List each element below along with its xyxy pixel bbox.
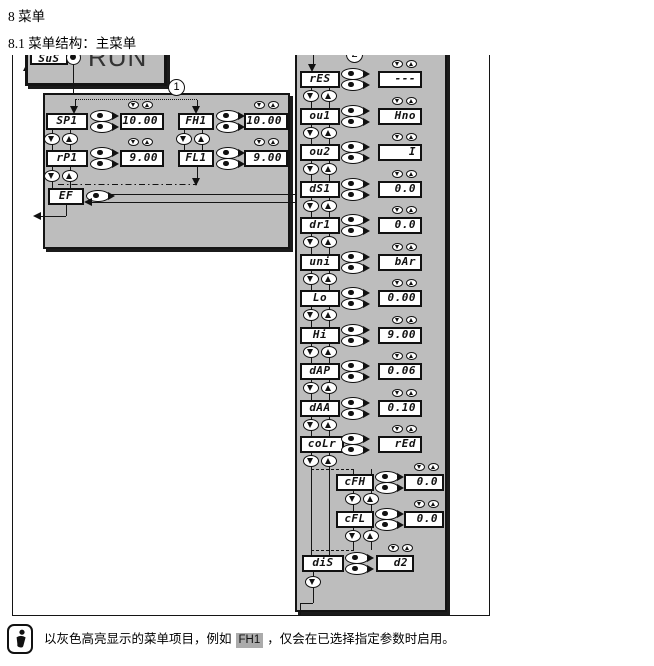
menu-label-box: SP1: [46, 113, 88, 130]
menu-value-box: 10.00: [120, 113, 164, 130]
set-button-icon: [341, 444, 365, 456]
set-button-dot: [97, 150, 103, 156]
up-arrow-glyph: [325, 385, 331, 391]
up-glyph: [405, 546, 409, 550]
section-heading: 8 菜单: [8, 5, 45, 25]
set-button-arrow: [363, 107, 370, 115]
up-button-icon: [62, 170, 78, 182]
menu-label-box: ou2: [300, 144, 340, 161]
up-button-icon: [321, 273, 337, 285]
set-button-dot: [348, 82, 354, 88]
set-button-arrow: [397, 484, 404, 492]
set-button-dot: [348, 447, 354, 453]
down-glyph: [395, 208, 399, 212]
set-button-dot: [97, 124, 103, 130]
down-button-icon: [303, 90, 319, 102]
up-arrow-glyph: [325, 349, 331, 355]
ef-label-box: EF: [48, 188, 84, 205]
set-button-dot: [348, 301, 354, 307]
set-button-dot: [348, 338, 354, 344]
menu-structure-diagram: SuSRUN1SP110.00FH110.00rP19.00FL19.00EF2…: [0, 55, 654, 618]
set-button-icon: [216, 158, 240, 170]
view-down-icon: [254, 101, 265, 109]
up-glyph: [145, 140, 149, 144]
set-button-arrow: [363, 253, 370, 261]
connector-line: [313, 55, 314, 64]
down-arrow-glyph: [180, 136, 186, 142]
set-button-icon: [341, 262, 365, 274]
set-button-dot: [348, 363, 354, 369]
view-up-icon: [406, 97, 417, 105]
set-button-arrow: [112, 112, 119, 120]
down-arrow-glyph: [307, 276, 313, 282]
sus-label-box: SuS: [30, 55, 68, 65]
set-button-dot: [223, 150, 229, 156]
menu-label-box: cFH: [336, 474, 374, 491]
set-button-arrow: [397, 521, 404, 529]
set-button-arrow: [367, 565, 374, 573]
up-arrow-glyph: [325, 130, 331, 136]
view-up-icon: [406, 243, 417, 251]
down-arrow-glyph: [48, 173, 54, 179]
set-button-dot: [97, 113, 103, 119]
up-arrow-glyph: [325, 422, 331, 428]
set-button-icon: [341, 298, 365, 310]
connector-line: [58, 184, 197, 185]
menu-label-box: Lo: [300, 290, 340, 307]
set-button-arrow: [363, 435, 370, 443]
connector-line: [12, 615, 489, 616]
set-button-icon: [341, 371, 365, 383]
set-button-dot: [70, 55, 76, 60]
up-arrow-glyph: [325, 203, 331, 209]
up-button-icon: [321, 90, 337, 102]
set-button-dot: [348, 265, 354, 271]
up-button-icon: [363, 493, 379, 505]
up-button-icon: [363, 530, 379, 542]
view-down-icon: [392, 133, 403, 141]
set-button-icon: [375, 519, 399, 531]
down-button-icon: [303, 200, 319, 212]
set-button-dot: [223, 124, 229, 130]
up-arrow-glyph: [198, 136, 204, 142]
down-glyph: [417, 465, 421, 469]
set-button-dot: [93, 193, 99, 199]
menu-label-box: FH1: [178, 113, 214, 130]
up-arrow-glyph: [325, 166, 331, 172]
set-button-arrow: [363, 337, 370, 345]
down-button-icon: [176, 133, 192, 145]
set-button-dot: [382, 485, 388, 491]
up-glyph: [145, 103, 149, 107]
down-button-icon: [303, 309, 319, 321]
set-button-dot: [348, 108, 354, 114]
view-up-icon: [268, 138, 279, 146]
down-arrow-glyph: [307, 166, 313, 172]
menu-value-box: 9.00: [120, 150, 164, 167]
up-glyph: [431, 502, 435, 506]
set-button-arrow: [363, 399, 370, 407]
up-arrow-glyph: [325, 312, 331, 318]
view-down-icon: [392, 243, 403, 251]
set-button-dot: [348, 144, 354, 150]
up-glyph: [409, 245, 413, 249]
up-glyph: [409, 391, 413, 395]
connector-line: [66, 205, 67, 216]
set-button-arrow: [363, 446, 370, 454]
set-button-arrow: [397, 473, 404, 481]
set-button-icon: [90, 158, 114, 170]
set-button-dot: [382, 522, 388, 528]
down-glyph: [395, 391, 399, 395]
down-glyph: [131, 140, 135, 144]
menu-label-box: rES: [300, 71, 340, 88]
set-button-arrow: [363, 300, 370, 308]
set-button-arrow: [363, 180, 370, 188]
down-glyph: [391, 546, 395, 550]
down-button-icon: [303, 127, 319, 139]
menu-label-box: dAP: [300, 363, 340, 380]
set-button-dot: [223, 161, 229, 167]
set-button-arrow: [112, 149, 119, 157]
set-button-dot: [348, 436, 354, 442]
set-button-arrow: [363, 326, 370, 334]
up-arrow-glyph: [66, 173, 72, 179]
menu-label-box: FL1: [178, 150, 214, 167]
up-button-icon: [321, 346, 337, 358]
down-glyph: [395, 281, 399, 285]
info-person-glyph: [13, 629, 28, 649]
up-button-icon: [321, 455, 337, 467]
set-button-dot: [348, 181, 354, 187]
set-button-dot: [348, 192, 354, 198]
down-arrow-glyph: [307, 312, 313, 318]
menu-value-box: 9.00: [244, 150, 288, 167]
menu-value-box: Hno: [378, 108, 422, 125]
set-button-icon: [345, 563, 369, 575]
set-button-icon: [341, 79, 365, 91]
down-arrow-glyph: [307, 422, 313, 428]
subsection-heading: 8.1 菜单结构：主菜单: [8, 32, 136, 52]
up-button-icon: [321, 309, 337, 321]
note-text-after: ，仅会在已选择指定参数时启用。: [267, 632, 455, 646]
set-button-arrow: [363, 154, 370, 162]
down-button-icon: [303, 346, 319, 358]
up-arrow-glyph: [367, 533, 373, 539]
set-button-dot: [382, 511, 388, 517]
set-button-arrow: [363, 362, 370, 370]
down-button-icon: [303, 382, 319, 394]
set-button-arrow: [363, 227, 370, 235]
down-arrow-glyph: [307, 130, 313, 136]
connector-line: [40, 216, 66, 217]
set-button-icon: [341, 335, 365, 347]
up-arrow-glyph: [66, 136, 72, 142]
down-button-icon: [345, 493, 361, 505]
up-glyph: [431, 465, 435, 469]
menu-value-box: bAr: [378, 254, 422, 271]
set-button-dot: [348, 400, 354, 406]
up-arrow-glyph: [367, 496, 373, 502]
connector-line: [110, 194, 295, 195]
up-arrow-glyph: [325, 276, 331, 282]
up-button-icon: [321, 200, 337, 212]
view-up-icon: [406, 133, 417, 141]
set-button-dot: [348, 71, 354, 77]
set-button-arrow: [112, 123, 119, 131]
connector-line: [300, 603, 313, 604]
run-display-text: RUN: [88, 55, 166, 82]
down-arrow-glyph: [307, 349, 313, 355]
down-glyph: [257, 103, 261, 107]
up-button-icon: [321, 163, 337, 175]
set-button-dot: [348, 411, 354, 417]
set-button-arrow: [108, 192, 115, 200]
view-down-icon: [392, 425, 403, 433]
set-button-dot: [348, 119, 354, 125]
connector-line: [300, 603, 301, 616]
info-note: 以灰色高亮显示的菜单项目，例如FH1，仅会在已选择指定参数时启用。: [7, 624, 647, 654]
view-up-icon: [406, 170, 417, 178]
down-glyph: [395, 245, 399, 249]
view-up-icon: [142, 101, 153, 109]
up-arrow-glyph: [325, 93, 331, 99]
down-arrow-glyph: [307, 203, 313, 209]
down-arrow-glyph: [349, 533, 355, 539]
set-button-arrow: [363, 373, 370, 381]
view-down-icon: [392, 170, 403, 178]
set-button-icon: [341, 152, 365, 164]
up-glyph: [409, 135, 413, 139]
set-button-dot: [352, 555, 358, 561]
menu-label-box: ou1: [300, 108, 340, 125]
down-button-icon: [305, 576, 321, 588]
view-up-icon: [268, 101, 279, 109]
note-text-before: 以灰色高亮显示的菜单项目，例如: [44, 632, 232, 646]
view-down-icon: [414, 500, 425, 508]
set-button-dot: [348, 254, 354, 260]
down-arrow-glyph: [307, 385, 313, 391]
down-arrow-glyph: [309, 579, 315, 585]
view-down-icon: [128, 101, 139, 109]
down-button-icon: [303, 419, 319, 431]
menu-value-box: 0.0: [404, 474, 444, 491]
view-down-icon: [392, 206, 403, 214]
info-icon: [7, 624, 33, 654]
view-up-icon: [406, 352, 417, 360]
set-button-arrow: [363, 216, 370, 224]
view-up-icon: [406, 389, 417, 397]
menu-value-box: 0.0: [404, 511, 444, 528]
view-down-icon: [414, 463, 425, 471]
down-glyph: [395, 318, 399, 322]
set-button-dot: [348, 290, 354, 296]
up-glyph: [409, 99, 413, 103]
view-down-icon: [392, 279, 403, 287]
up-glyph: [409, 281, 413, 285]
view-down-icon: [128, 138, 139, 146]
up-button-icon: [321, 382, 337, 394]
view-up-icon: [406, 206, 417, 214]
menu-label-box: dAA: [300, 400, 340, 417]
view-down-icon: [392, 60, 403, 68]
down-button-icon: [303, 455, 319, 467]
up-button-icon: [321, 236, 337, 248]
down-button-icon: [44, 170, 60, 182]
set-button-dot: [348, 374, 354, 380]
view-up-icon: [406, 425, 417, 433]
set-button-arrow: [363, 410, 370, 418]
down-arrow-glyph: [48, 136, 54, 142]
view-up-icon: [428, 463, 439, 471]
set-button-dot: [348, 217, 354, 223]
menu-value-box: 0.06: [378, 363, 422, 380]
menu-label-box: Hi: [300, 327, 340, 344]
connector-line: [12, 55, 13, 616]
view-down-icon: [388, 544, 399, 552]
menu-value-box: 10.00: [244, 113, 288, 130]
down-button-icon: [303, 163, 319, 175]
set-button-dot: [348, 228, 354, 234]
view-down-icon: [392, 352, 403, 360]
down-glyph: [395, 135, 399, 139]
menu-label-box: dr1: [300, 217, 340, 234]
view-down-icon: [392, 389, 403, 397]
set-button-dot: [348, 327, 354, 333]
menu-value-box: 0.10: [378, 400, 422, 417]
set-button-arrow: [112, 160, 119, 168]
down-glyph: [395, 354, 399, 358]
set-button-dot: [223, 113, 229, 119]
set-button-arrow: [363, 118, 370, 126]
set-button-dot: [382, 474, 388, 480]
set-button-arrow: [363, 264, 370, 272]
connector-line: [313, 588, 314, 603]
menu-value-box: 0.0: [378, 181, 422, 198]
menu-label-box: cFL: [336, 511, 374, 528]
menu-label-box: coLr: [300, 436, 344, 453]
set-button-icon: [341, 408, 365, 420]
set-button-arrow: [363, 289, 370, 297]
down-glyph: [131, 103, 135, 107]
down-button-icon: [345, 530, 361, 542]
set-button-arrow: [363, 81, 370, 89]
set-button-dot: [97, 161, 103, 167]
connector-line: [311, 469, 354, 470]
up-glyph: [271, 103, 275, 107]
highlighted-menu-item: FH1: [236, 633, 264, 648]
menu-value-box: rEd: [378, 436, 422, 453]
view-down-icon: [254, 138, 265, 146]
view-up-icon: [428, 500, 439, 508]
down-arrow-glyph: [307, 239, 313, 245]
up-glyph: [409, 354, 413, 358]
set-button-icon: [375, 482, 399, 494]
connector-line: [489, 55, 490, 616]
left-arrowhead-icon: [84, 198, 92, 206]
set-button-icon: [216, 121, 240, 133]
menu-label-box: uni: [300, 254, 340, 271]
up-glyph: [409, 62, 413, 66]
menu-value-box: 9.00: [378, 327, 422, 344]
connector-line: [197, 167, 198, 178]
up-button-icon: [194, 133, 210, 145]
down-arrow-glyph: [307, 93, 313, 99]
down-glyph: [395, 62, 399, 66]
up-arrow-glyph: [325, 458, 331, 464]
up-arrow-glyph: [325, 239, 331, 245]
callout-1: 1: [168, 79, 185, 96]
up-button-icon: [321, 419, 337, 431]
set-button-dot: [352, 566, 358, 572]
down-glyph: [257, 140, 261, 144]
menu-label-box: dS1: [300, 181, 340, 198]
menu-value-box: 0.0: [378, 217, 422, 234]
down-glyph: [417, 502, 421, 506]
set-button-dot: [348, 155, 354, 161]
down-button-icon: [44, 133, 60, 145]
down-arrow-glyph: [307, 458, 313, 464]
set-button-arrow: [367, 554, 374, 562]
set-button-icon: [341, 225, 365, 237]
view-up-icon: [402, 544, 413, 552]
set-button-arrow: [397, 510, 404, 518]
menu-label-box: diS: [302, 555, 344, 572]
view-down-icon: [392, 97, 403, 105]
view-up-icon: [406, 60, 417, 68]
set-button-arrow: [363, 70, 370, 78]
down-glyph: [395, 427, 399, 431]
set-button-arrow: [363, 191, 370, 199]
down-button-icon: [303, 273, 319, 285]
set-button-icon: [341, 116, 365, 128]
set-button-arrow: [363, 143, 370, 151]
up-glyph: [409, 427, 413, 431]
view-up-icon: [406, 279, 417, 287]
down-glyph: [395, 172, 399, 176]
connector-line: [92, 202, 295, 203]
menu-value-box: 0.00: [378, 290, 422, 307]
view-up-icon: [406, 316, 417, 324]
set-button-icon: [341, 189, 365, 201]
up-glyph: [409, 172, 413, 176]
menu-value-box: d2: [376, 555, 414, 572]
menu-label-box: rP1: [46, 150, 88, 167]
menu-value-box: I: [378, 144, 422, 161]
left-arrowhead-icon: [33, 212, 41, 220]
up-glyph: [409, 318, 413, 322]
up-button-icon: [62, 133, 78, 145]
manual-page: { "page": { "heading1": "8 菜单", "heading…: [0, 0, 654, 666]
view-down-icon: [392, 316, 403, 324]
up-glyph: [409, 208, 413, 212]
connector-line: [311, 550, 354, 551]
connector-line: [75, 99, 197, 100]
set-button-icon: [90, 121, 114, 133]
down-button-icon: [303, 236, 319, 248]
up-button-icon: [321, 127, 337, 139]
up-glyph: [271, 140, 275, 144]
view-up-icon: [142, 138, 153, 146]
down-arrow-glyph: [349, 496, 355, 502]
note-text: 以灰色高亮显示的菜单项目，例如FH1，仅会在已选择指定参数时启用。: [44, 624, 455, 654]
down-glyph: [395, 99, 399, 103]
menu-value-box: ---: [378, 71, 422, 88]
